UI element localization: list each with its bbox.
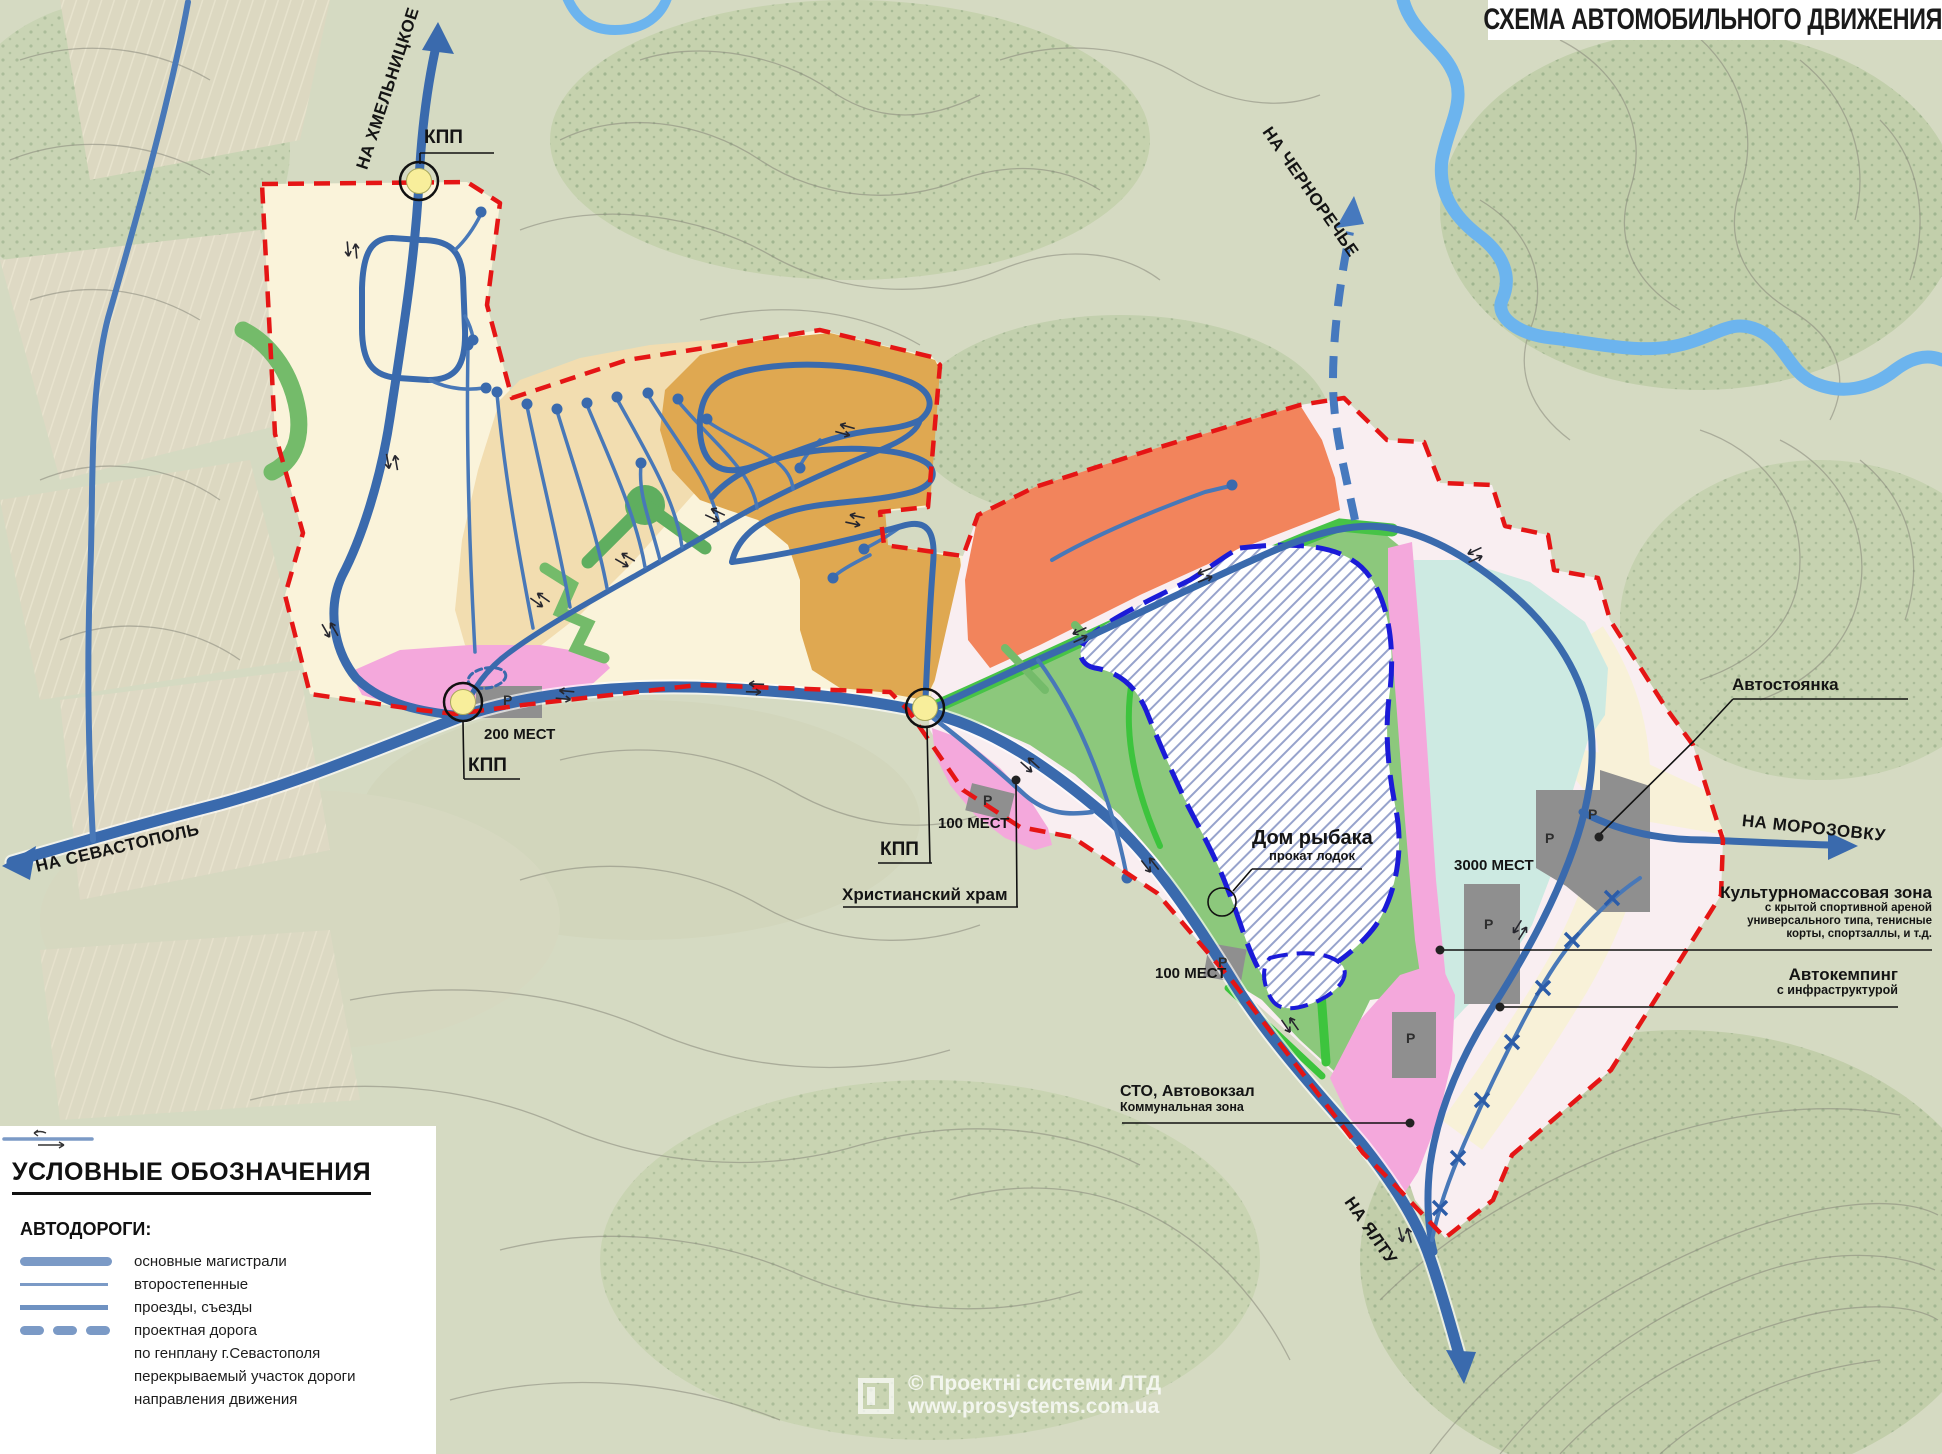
legend-row-main-roads: основные магистрали — [20, 1250, 436, 1273]
poi-parking-area-label: Автостоянка — [1732, 676, 1839, 694]
parking-p-church: P — [983, 792, 992, 808]
watermark-logo-icon — [858, 1378, 894, 1414]
poi-camping-subtitle: с инфраструктурой — [1700, 984, 1898, 997]
capacity-100-south: 100 МЕСТ — [1155, 966, 1226, 982]
parking-p-cultural-4: P — [1406, 1030, 1415, 1046]
capacity-100-church: 100 МЕСТ — [938, 816, 1009, 832]
poi-cultural-title: Культурномассовая зона — [1690, 884, 1932, 902]
parking-p-cultural-1: P — [1545, 830, 1554, 846]
legend-label: основные магистрали — [134, 1253, 287, 1270]
legend-label: по генплану г.Севастополя — [134, 1345, 320, 1362]
poi-sto-subtitle: Коммунальная зона — [1120, 1101, 1255, 1114]
poi-cultural-zone: Культурномассовая зона с крытой спортивн… — [1690, 884, 1932, 941]
traffic-scheme-map: ; — [0, 0, 1942, 1454]
legend-row-secondary-roads: второстепенные — [20, 1273, 436, 1296]
kpp-label-west: КПП — [468, 756, 507, 776]
watermark-url: www.prosystems.com.ua — [908, 1395, 1161, 1418]
legend-label: проектная дорога — [134, 1322, 257, 1339]
poi-sto-title: СТО, Автовокзал — [1120, 1084, 1255, 1101]
capacity-200: 200 МЕСТ — [484, 727, 555, 743]
parking-p-west: P — [503, 692, 512, 708]
legend-symbol-thick-line — [20, 1257, 120, 1266]
poi-fisherman-house: Дом рыбака прокат лодок — [1252, 828, 1372, 863]
parking-p-cultural-2: P — [1588, 806, 1597, 822]
poi-cultural-line4: корты, спортзаллы, и т.д. — [1690, 928, 1932, 941]
watermark-company: © Проектні системи ЛТД — [908, 1372, 1161, 1395]
legend-symbol-dashed-line — [20, 1326, 120, 1335]
legend-label: проезды, съезды — [134, 1299, 252, 1316]
poi-cultural-line3: универсального типа, тенисные — [1690, 915, 1932, 928]
legend-row-projected-road: проектная дорога — [20, 1319, 436, 1342]
parking-p-south: P — [1218, 954, 1227, 970]
poi-fisherman-title: Дом рыбака — [1252, 828, 1372, 849]
building-cultural-2 — [1464, 884, 1520, 1004]
watermark: © Проектні системи ЛТД www.prosystems.co… — [858, 1372, 1161, 1418]
poi-fisherman-subtitle: прокат лодок — [1252, 849, 1372, 863]
legend-panel: УСЛОВНЫЕ ОБОЗНАЧЕНИЯ АВТОДОРОГИ: основны… — [0, 1126, 436, 1454]
poi-camping-title: Автокемпинг — [1700, 966, 1898, 984]
legend-label: направления движения — [134, 1391, 297, 1408]
poi-camping: Автокемпинг с инфраструктурой — [1700, 966, 1898, 997]
kpp-label-center: КПП — [880, 840, 919, 860]
kpp-label-north: КПП — [424, 128, 463, 148]
legend-symbol-medium-line — [20, 1305, 120, 1310]
legend-title: УСЛОВНЫЕ ОБОЗНАЧЕНИЯ — [12, 1158, 371, 1195]
legend-row-blocked-section: перекрываемый участок дороги — [20, 1365, 436, 1388]
legend-symbol-thin-line — [20, 1283, 120, 1286]
map-title: СХЕМА АВТОМОБИЛЬНОГО ДВИЖЕНИЯ — [1483, 3, 1942, 37]
legend-row-driveways: проезды, съезды — [20, 1296, 436, 1319]
legend-subtitle: АВТОДОРОГИ: — [20, 1219, 436, 1240]
poi-cultural-line2: с крытой спортивной ареной — [1690, 902, 1932, 915]
map-title-bar: СХЕМА АВТОМОБИЛЬНОГО ДВИЖЕНИЯ — [1488, 0, 1942, 40]
poi-church-label: Христианский храм — [842, 886, 1008, 904]
parking-p-cultural-3: P — [1484, 916, 1493, 932]
legend-row-genplan: по генплану г.Севастополя — [20, 1342, 436, 1365]
legend-row-directions: направления движения — [20, 1388, 436, 1411]
capacity-3000: 3000 МЕСТ — [1454, 858, 1534, 874]
poi-sto: СТО, Автовокзал Коммунальная зона — [1120, 1084, 1255, 1114]
legend-label: перекрываемый участок дороги — [134, 1368, 356, 1385]
legend-label: второстепенные — [134, 1276, 248, 1293]
